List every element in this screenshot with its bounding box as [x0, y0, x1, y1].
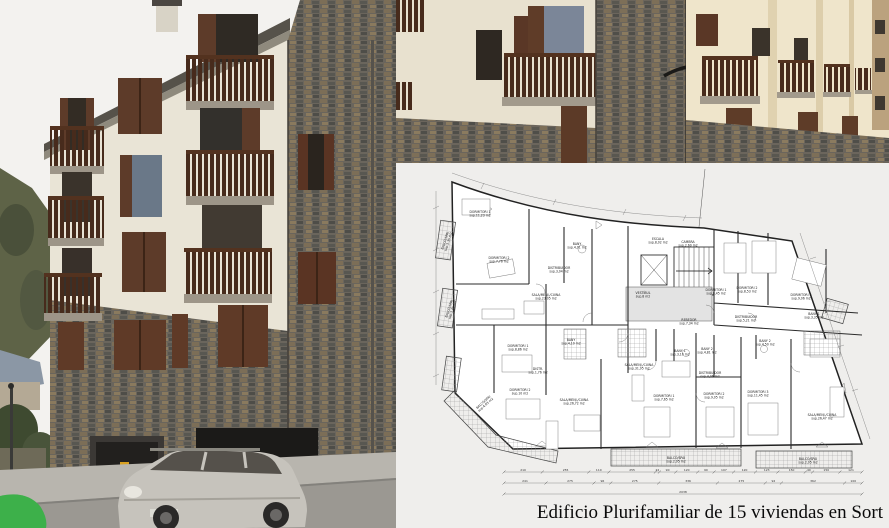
dimension-value: 90 [704, 468, 708, 472]
dimension-value: 210 [520, 468, 526, 472]
roof-rails [150, 448, 260, 451]
dimension-value: 100 [850, 479, 856, 483]
floor-plan: DORMITORI 1sup.11,23 m2BALCÓ/SPAIsup.1,3… [396, 163, 889, 528]
dimension-value: 110 [596, 468, 602, 472]
balcony [502, 53, 598, 106]
dimension-value: 241 [522, 479, 528, 483]
room-label: DORMITORI 3sup.9,06 m2 [791, 293, 812, 300]
room-label: BALCÓ/SPAIsup.2,95 m2 [666, 455, 685, 463]
balcony [44, 273, 102, 321]
balcony [700, 56, 760, 104]
balcony [186, 55, 274, 110]
dimension-value: 275 [739, 479, 745, 483]
dimension-value: 92 [771, 479, 775, 483]
balcony [50, 126, 104, 174]
room-label: DORMITORI 2sup.7,76 m2 [489, 256, 510, 263]
room-label: DISTRIBUIDORsup.5,21 m2 [735, 315, 758, 322]
dimension-value: 96 [600, 479, 604, 483]
facade-photo [396, 0, 889, 163]
window-column-left [44, 98, 104, 321]
balcony [855, 68, 872, 94]
room-label: DISTRIBUIDORsup.3,04 m2 [548, 266, 571, 273]
balcony [184, 248, 272, 303]
caption: Edificio Plurifamiliar de 15 viviendas e… [537, 502, 883, 524]
room-label: DORMITORI 3sup.11,45 m2 [747, 390, 768, 397]
building-photo [0, 0, 396, 528]
leader-line [699, 169, 705, 227]
dimension-rows: 2102551102552290120901071201231504015012… [503, 468, 864, 496]
dimension-value: 336 [685, 479, 691, 483]
dimension-value: 150 [823, 468, 829, 472]
floor-plan-drawing: DORMITORI 1sup.11,23 m2BALCÓ/SPAIsup.1,3… [396, 163, 889, 503]
right-facade [686, 0, 889, 163]
dimension-value: 362 [810, 479, 816, 483]
window-column-middle [118, 78, 166, 292]
room-label: REBEDORsup.7,34 m2 [679, 318, 698, 325]
dimension-value: 255 [629, 468, 635, 472]
dimension-value: 150 [789, 468, 795, 472]
dimension-value: 90 [666, 468, 670, 472]
dimension-value: 123 [764, 468, 770, 472]
room-label: DORMITORI 1sup.8,86 m2 [508, 344, 529, 351]
window-column-right [184, 14, 274, 303]
dimension-value: 22 [655, 468, 659, 472]
portfolio-sheet: DORMITORI 1sup.11,23 m2BALCÓ/SPAIsup.1,3… [0, 0, 889, 528]
room-label: DISTRIBUIDORsup.4,06 m2 [699, 371, 722, 378]
room-label: DORMITORI 2sup.10 m2 [510, 388, 531, 395]
dimension-value: 120 [742, 468, 748, 472]
dimension-value: 275 [632, 479, 638, 483]
dimension-value: 2038 [679, 490, 687, 494]
room-label: BALCÓ/SPAIsup.2,05 m2 [798, 456, 817, 464]
room-label: DORMITORI 1sup.7,65 m2 [654, 394, 675, 401]
dimension-value: 121 [848, 468, 854, 472]
stone-corner [596, 0, 686, 163]
building-photo-art [0, 0, 396, 528]
room-label: DORMITORI 2sup.9,05 m2 [704, 392, 725, 399]
room-label: VESTÍBULsup.8 m2 [636, 290, 651, 298]
chimney [156, 2, 178, 32]
room-label: DORMITORI 1sup.11,23 m2 [469, 210, 490, 217]
room-label: DORMITORI 1sup.8,45 m2 [706, 288, 727, 295]
balcony [823, 64, 851, 97]
balcony [48, 196, 104, 246]
balcony [186, 150, 274, 205]
dimension-value: 120 [684, 468, 690, 472]
facade-photo-art [396, 0, 889, 163]
dimension-value: 255 [563, 468, 569, 472]
dimension-value: 107 [721, 468, 727, 472]
drainpipe [371, 40, 374, 490]
balcony [777, 60, 815, 98]
dimension-value: 275 [567, 479, 573, 483]
room-label: DORMITORI 2sup.8,53 m2 [737, 286, 758, 293]
dimension-value: 40 [807, 468, 811, 472]
